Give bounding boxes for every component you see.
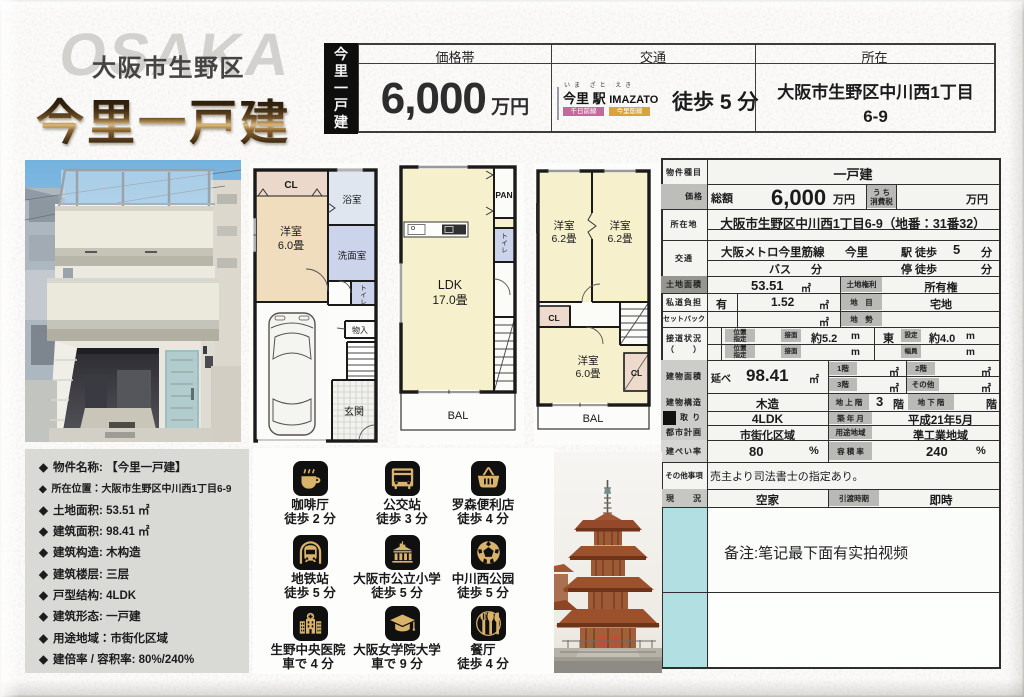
svg-text:CL: CL (631, 368, 642, 378)
svg-text:イ: イ (360, 292, 367, 299)
svg-text:6.2畳: 6.2畳 (551, 233, 577, 245)
svg-text:洋室: 洋室 (554, 219, 575, 232)
svg-text:洋室: 洋室 (578, 354, 599, 367)
svg-text:LDK: LDK (438, 278, 463, 292)
svg-text:レ: レ (360, 299, 367, 306)
svg-text:BAL: BAL (583, 413, 604, 425)
svg-text:物入: 物入 (352, 325, 368, 335)
svg-text:6.0畳: 6.0畳 (575, 368, 601, 380)
svg-text:洋室: 洋室 (280, 224, 302, 238)
svg-text:浴室: 浴室 (342, 194, 361, 206)
svg-text:ト: ト (360, 285, 367, 292)
svg-text:6.0畳: 6.0畳 (278, 239, 304, 252)
svg-text:PAN: PAN (495, 190, 512, 200)
svg-text:洋室: 洋室 (610, 219, 631, 232)
svg-text:玄関: 玄関 (344, 405, 364, 418)
svg-text:17.0畳: 17.0畳 (432, 293, 467, 307)
svg-text:レ: レ (501, 247, 508, 254)
svg-text:CL: CL (548, 313, 559, 323)
svg-text:洗面室: 洗面室 (338, 250, 367, 262)
svg-text:ト: ト (501, 233, 508, 240)
svg-text:CL: CL (284, 180, 297, 191)
svg-text:BAL: BAL (448, 410, 469, 422)
svg-text:6.2畳: 6.2畳 (607, 233, 633, 245)
svg-text:イ: イ (501, 240, 508, 247)
